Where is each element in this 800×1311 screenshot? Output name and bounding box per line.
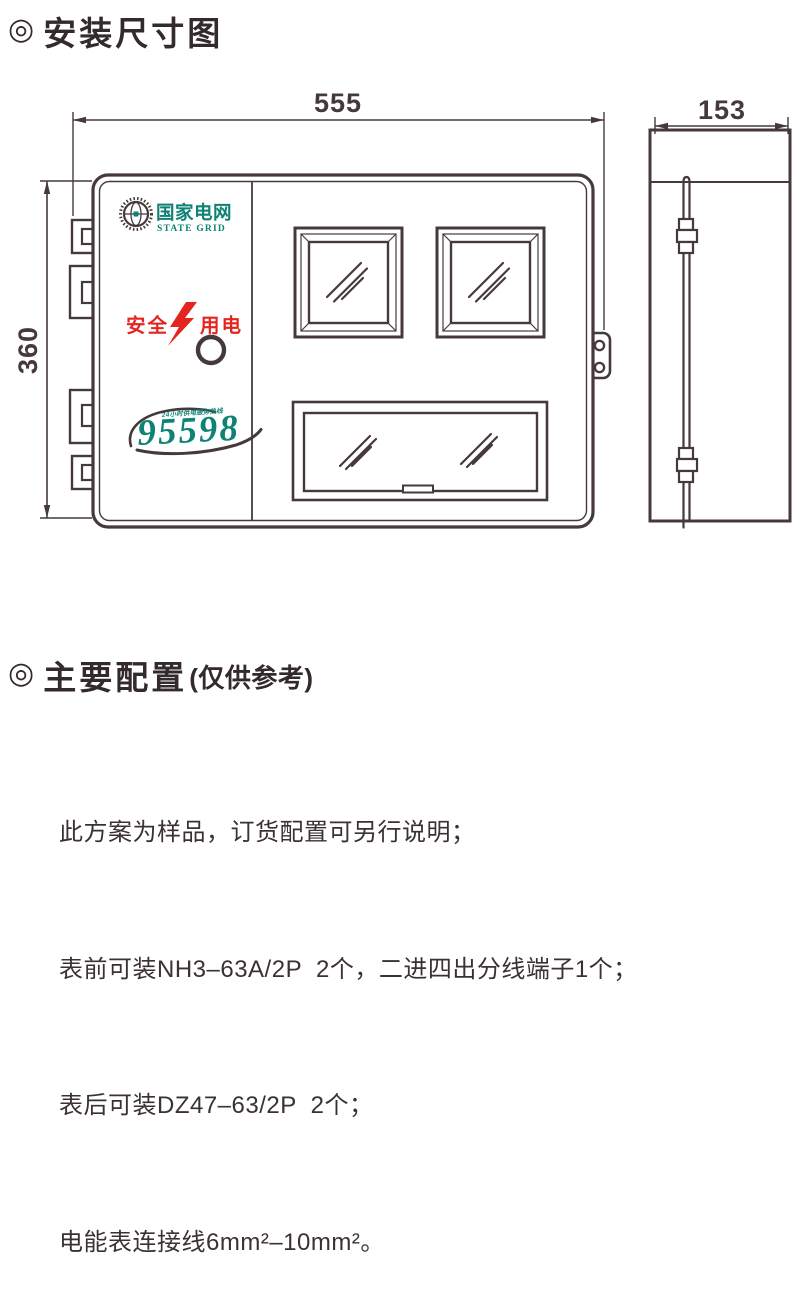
dim-width-value: 555 xyxy=(314,88,362,118)
safety-text-right: 用电 xyxy=(200,314,243,337)
knuckle-segment xyxy=(677,459,697,471)
config-line: 此方案为样品，订货配置可另行说明； xyxy=(59,810,779,856)
dim-depth-153: 153 xyxy=(655,95,788,134)
brand-name-cn: 国家电网 xyxy=(156,202,232,223)
installation-dimension-diagram: 国家电网 STATE GRID 安全 用电 24小时供电服务热线 95598 5… xyxy=(0,0,800,606)
config-section-title: 主要配置 xyxy=(43,651,187,699)
front-view-hinges xyxy=(70,220,95,489)
dim-height-value: 360 xyxy=(13,326,43,374)
window-handle-tab xyxy=(403,486,433,493)
arrowhead-left xyxy=(655,123,668,129)
knuckle-segment xyxy=(679,448,693,459)
state-grid-emblem-core xyxy=(134,212,139,217)
arrowhead-left xyxy=(73,117,86,123)
section-title-config: ◎ 主要配置 (仅供参考) xyxy=(8,651,314,699)
dim-depth-value: 153 xyxy=(698,95,746,125)
config-line: 电能表连接线6mm²–10mm²。 xyxy=(59,1220,779,1266)
config-section-subtitle: (仅供参考) xyxy=(189,658,313,695)
side-view xyxy=(650,130,790,528)
arrowhead-right xyxy=(775,123,788,129)
side-hinge-knuckle-1 xyxy=(677,219,697,253)
arrowhead-bottom xyxy=(44,505,50,518)
knuckle-segment xyxy=(679,471,693,482)
brand-name-en: STATE GRID xyxy=(157,224,226,234)
config-line: 表前可装NH3–63A/2P 2个，二进四出分线端子1个； xyxy=(59,947,779,993)
config-line: 表后可装DZ47–63/2P 2个； xyxy=(59,1083,779,1129)
knuckle-segment xyxy=(679,242,693,253)
knuckle-segment xyxy=(679,219,693,230)
knuckle-segment xyxy=(677,230,697,242)
safety-text-left: 安全 xyxy=(126,314,169,337)
side-hinge-knuckle-2 xyxy=(677,448,697,482)
config-text-block: 此方案为样品，订货配置可另行说明； 表前可装NH3–63A/2P 2个，二进四出… xyxy=(59,719,779,1311)
side-outline xyxy=(650,130,790,521)
hotline-number: 95598 xyxy=(136,408,241,454)
arrowhead-right xyxy=(591,117,604,123)
arrowhead-top xyxy=(44,181,50,194)
section-bullet-icon: ◎ xyxy=(8,659,34,689)
